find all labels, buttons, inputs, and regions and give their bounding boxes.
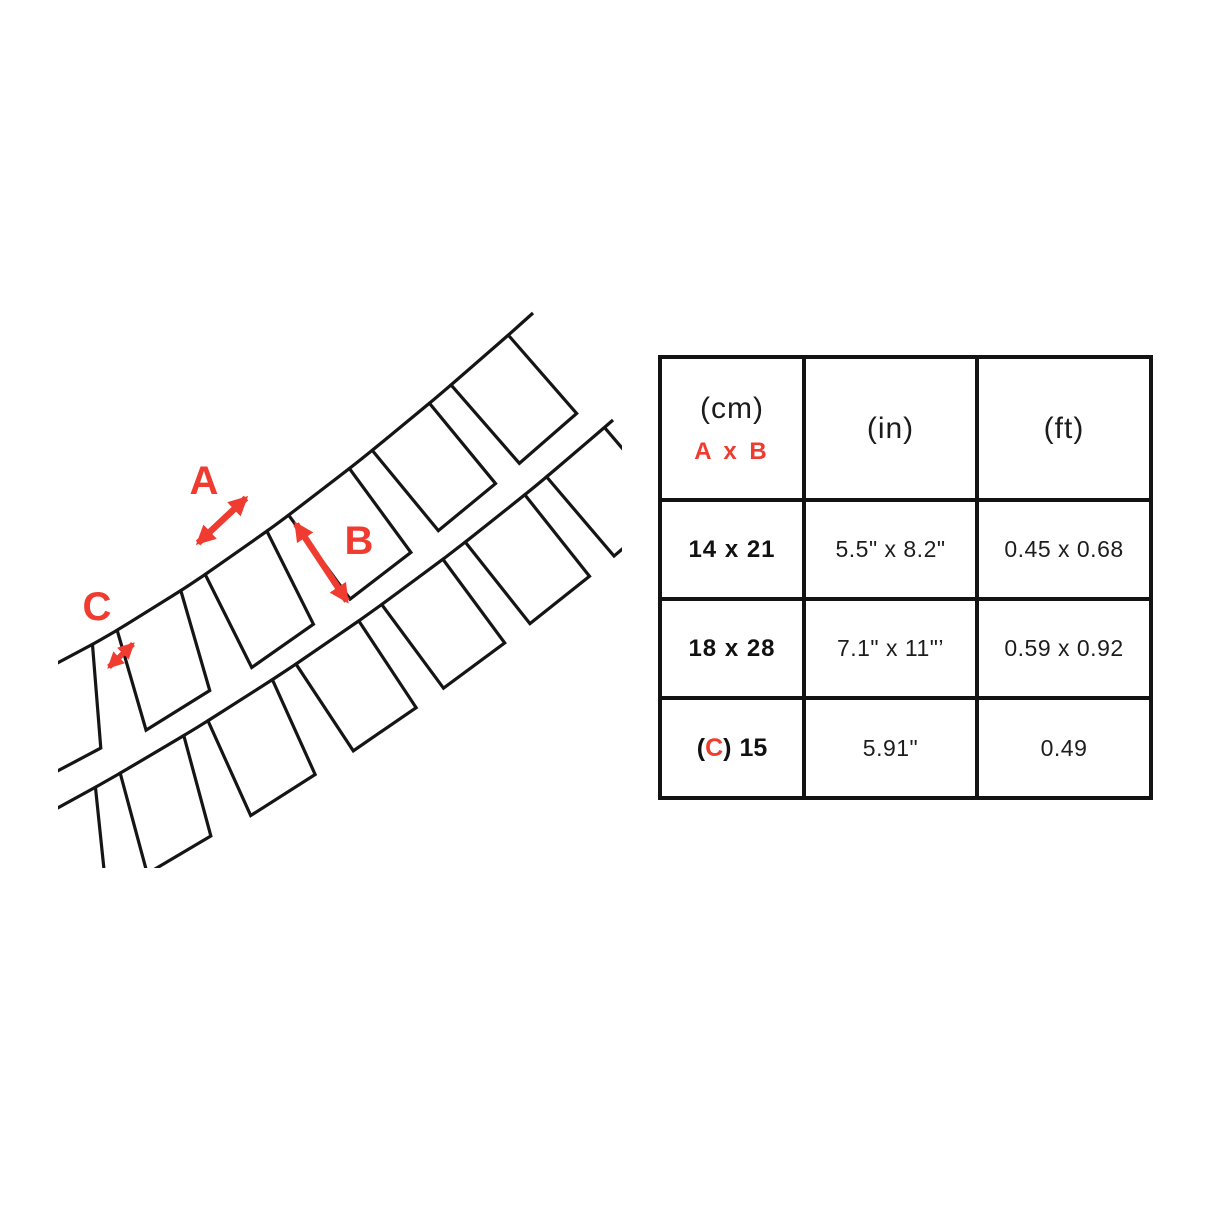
header-cell-cm: (cm) A x B (662, 359, 806, 502)
header-cell-in: (in) (806, 359, 979, 502)
row2-size-cm: 18 x 28 (662, 601, 806, 700)
row2-size-ft: 0.59 x 0.92 (979, 601, 1149, 700)
unit-in-label: (in) (867, 412, 914, 446)
size-value: 7.1" x 11"’ (837, 635, 944, 662)
row3-gap-ft: 0.49 (979, 700, 1149, 796)
paren-close: ) (723, 734, 731, 762)
size-label: 14 x 21 (688, 536, 775, 564)
size-value: 0.49 (1041, 735, 1088, 762)
label-b: B (345, 519, 374, 563)
unit-ft-label: (ft) (1044, 412, 1085, 446)
unit-cm-label: (cm) (700, 392, 764, 426)
size-value: 5.5" x 8.2" (835, 536, 945, 563)
paver-path-diagram: A B C (0, 0, 680, 1000)
size-value: 5.91" (863, 735, 918, 762)
row3-gap-in: 5.91" (806, 700, 979, 796)
page: { "diagram": { "label_a": "A", "label_b"… (0, 0, 1214, 1214)
axb-label: A x B (694, 438, 769, 466)
label-a: A (190, 459, 219, 503)
paren-open: ( (697, 734, 705, 762)
stone-rows (24, 313, 672, 928)
size-value: 0.59 x 0.92 (1004, 635, 1123, 662)
size-label: 18 x 28 (688, 635, 775, 663)
row2-size-in: 7.1" x 11"’ (806, 601, 979, 700)
gap-value-cm: 15 (739, 734, 767, 762)
label-c: C (83, 585, 112, 629)
dimensions-table: (cm) A x B (in) (ft) 14 x 21 5.5" x 8.2"… (658, 355, 1153, 800)
size-value: 0.45 x 0.68 (1004, 536, 1123, 563)
row1-size-ft: 0.45 x 0.68 (979, 502, 1149, 601)
row1-size-in: 5.5" x 8.2" (806, 502, 979, 601)
gap-label: (C)15 (697, 734, 768, 763)
arrow-a-width (198, 498, 246, 543)
row3-gap-cm: (C)15 (662, 700, 806, 796)
gap-letter-c: C (705, 734, 723, 762)
header-cell-ft: (ft) (979, 359, 1149, 502)
row1-size-cm: 14 x 21 (662, 502, 806, 601)
